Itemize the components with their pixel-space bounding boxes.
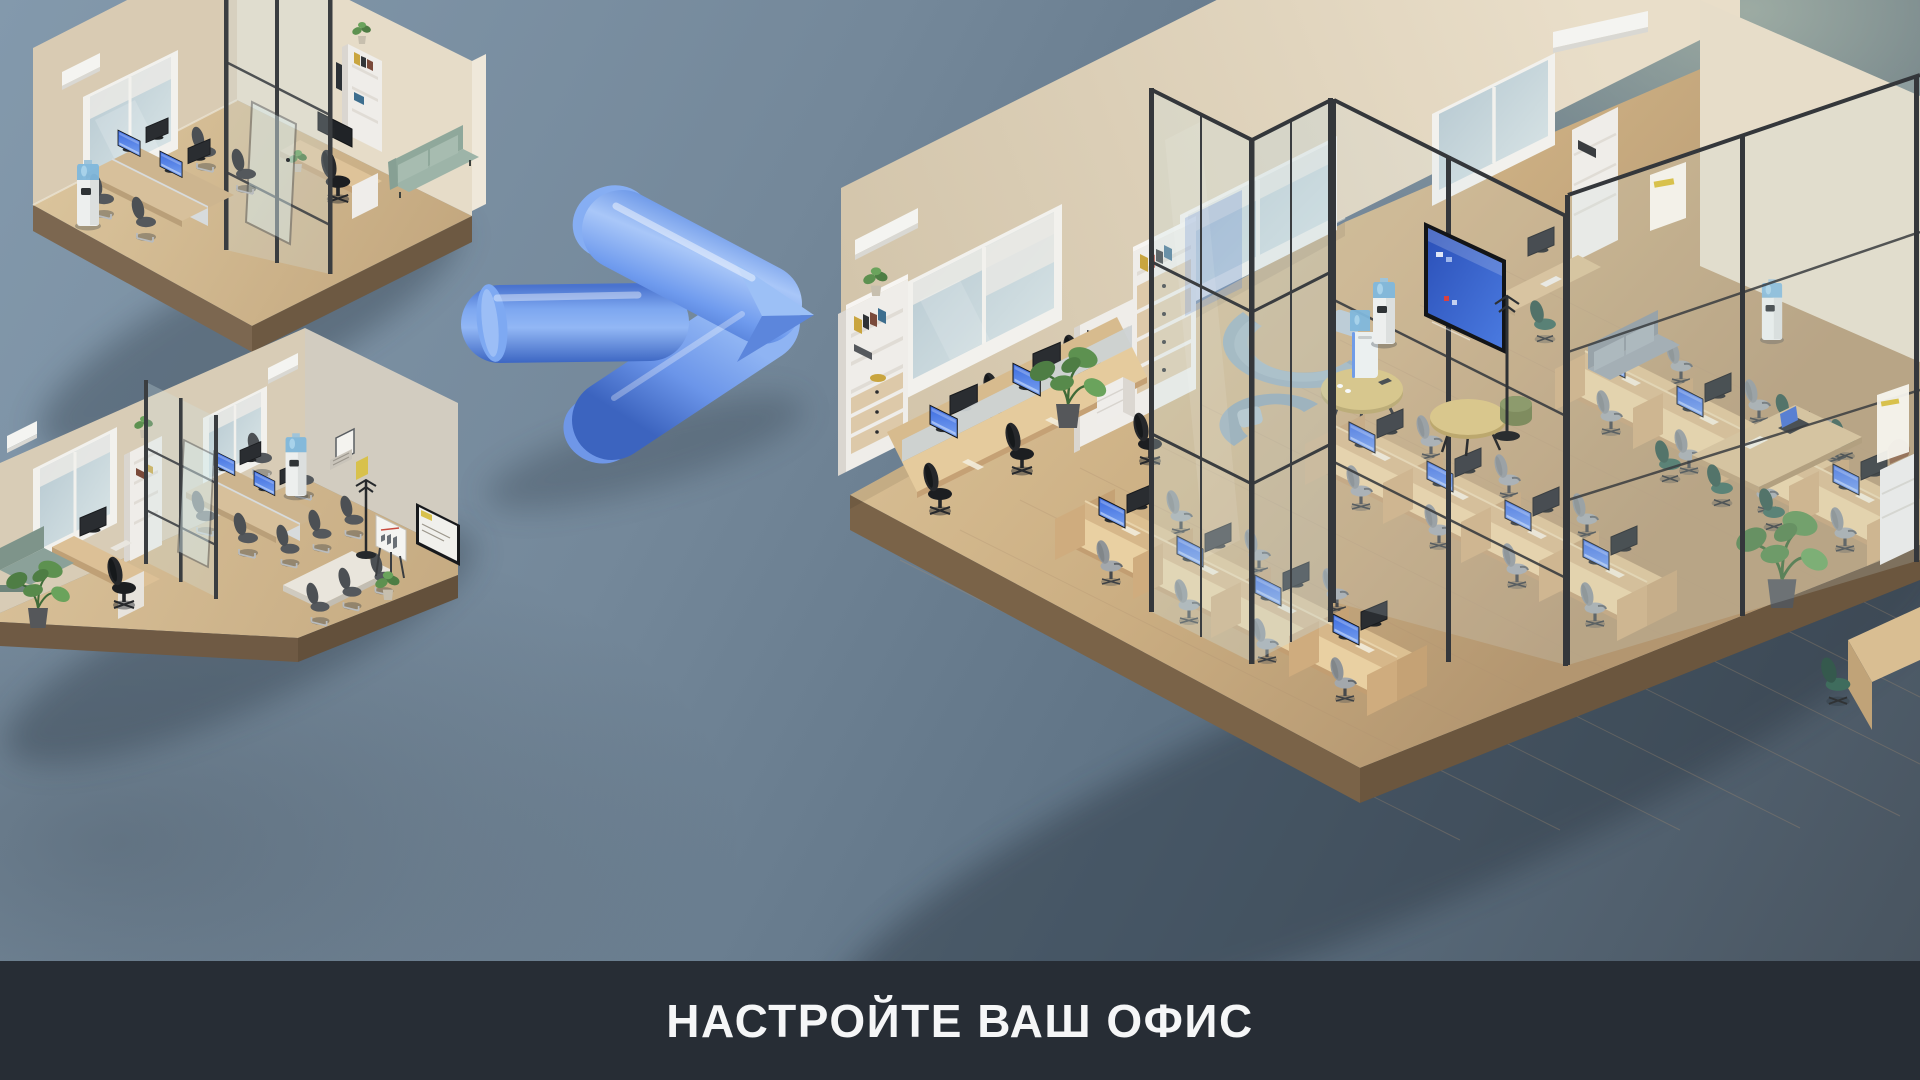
water-cooler-1 xyxy=(1371,278,1397,349)
caption-text: НАСТРОЙТЕ ВАШ ОФИС xyxy=(666,998,1253,1044)
water-cooler xyxy=(284,433,309,500)
glass-partition xyxy=(144,380,218,599)
water-cooler xyxy=(75,160,101,231)
glass-meeting-box xyxy=(1149,88,1333,664)
glass-partition xyxy=(224,0,333,274)
air-conditioner-1 xyxy=(7,421,37,453)
office-before-2 xyxy=(0,328,460,662)
office-before-1 xyxy=(33,0,486,352)
spare-bottle xyxy=(1350,310,1371,331)
scene-illustration xyxy=(0,0,1920,1080)
promo-poster: НАСТРОЙТЕ ВАШ ОФИС xyxy=(0,0,1920,1080)
green-pouf xyxy=(1500,396,1532,426)
wall-end-face xyxy=(472,54,486,211)
caption-banner: НАСТРОЙТЕ ВАШ ОФИС xyxy=(0,961,1920,1080)
